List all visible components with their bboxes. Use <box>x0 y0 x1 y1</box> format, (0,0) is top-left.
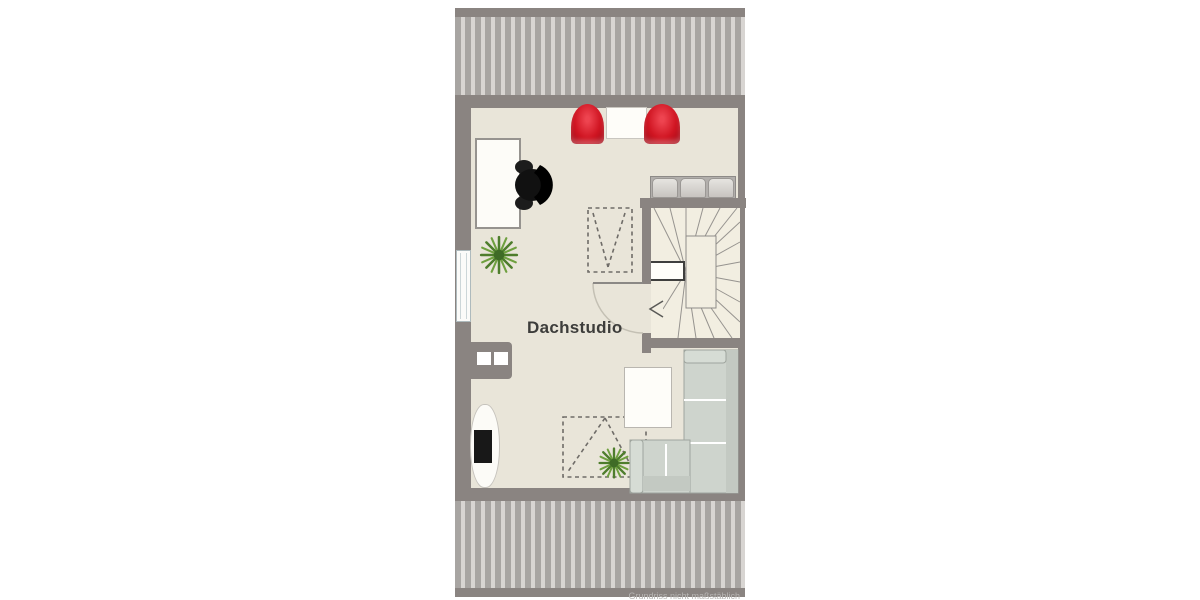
roof-hatch-bottom <box>455 501 745 588</box>
tv-screen <box>474 430 492 463</box>
potted-plant-desk <box>478 234 520 276</box>
roof-hatch-top <box>455 17 745 95</box>
armchair-right <box>644 104 680 144</box>
room-label: Dachstudio <box>527 318 623 338</box>
chimney-flue <box>477 352 491 365</box>
winder-staircase <box>640 190 746 356</box>
coffee-table <box>624 367 672 428</box>
wall-top <box>455 95 745 108</box>
floorplan-canvas: Dachstudio Grundriss nicht maßstäblich <box>0 0 1200 600</box>
potted-plant-sofa <box>596 444 632 482</box>
roof-ridge-top <box>455 8 745 17</box>
office-chair <box>510 155 554 215</box>
stair-entry-step <box>650 262 684 280</box>
roof-window-upper <box>585 205 635 275</box>
side-table <box>606 107 647 139</box>
chimney <box>455 342 512 379</box>
disclaimer-text: Grundriss nicht maßstäblich <box>540 591 740 600</box>
chimney-flue <box>494 352 508 365</box>
armchair-left <box>571 104 604 144</box>
wall-window <box>456 250 471 322</box>
window-pane <box>460 253 467 319</box>
